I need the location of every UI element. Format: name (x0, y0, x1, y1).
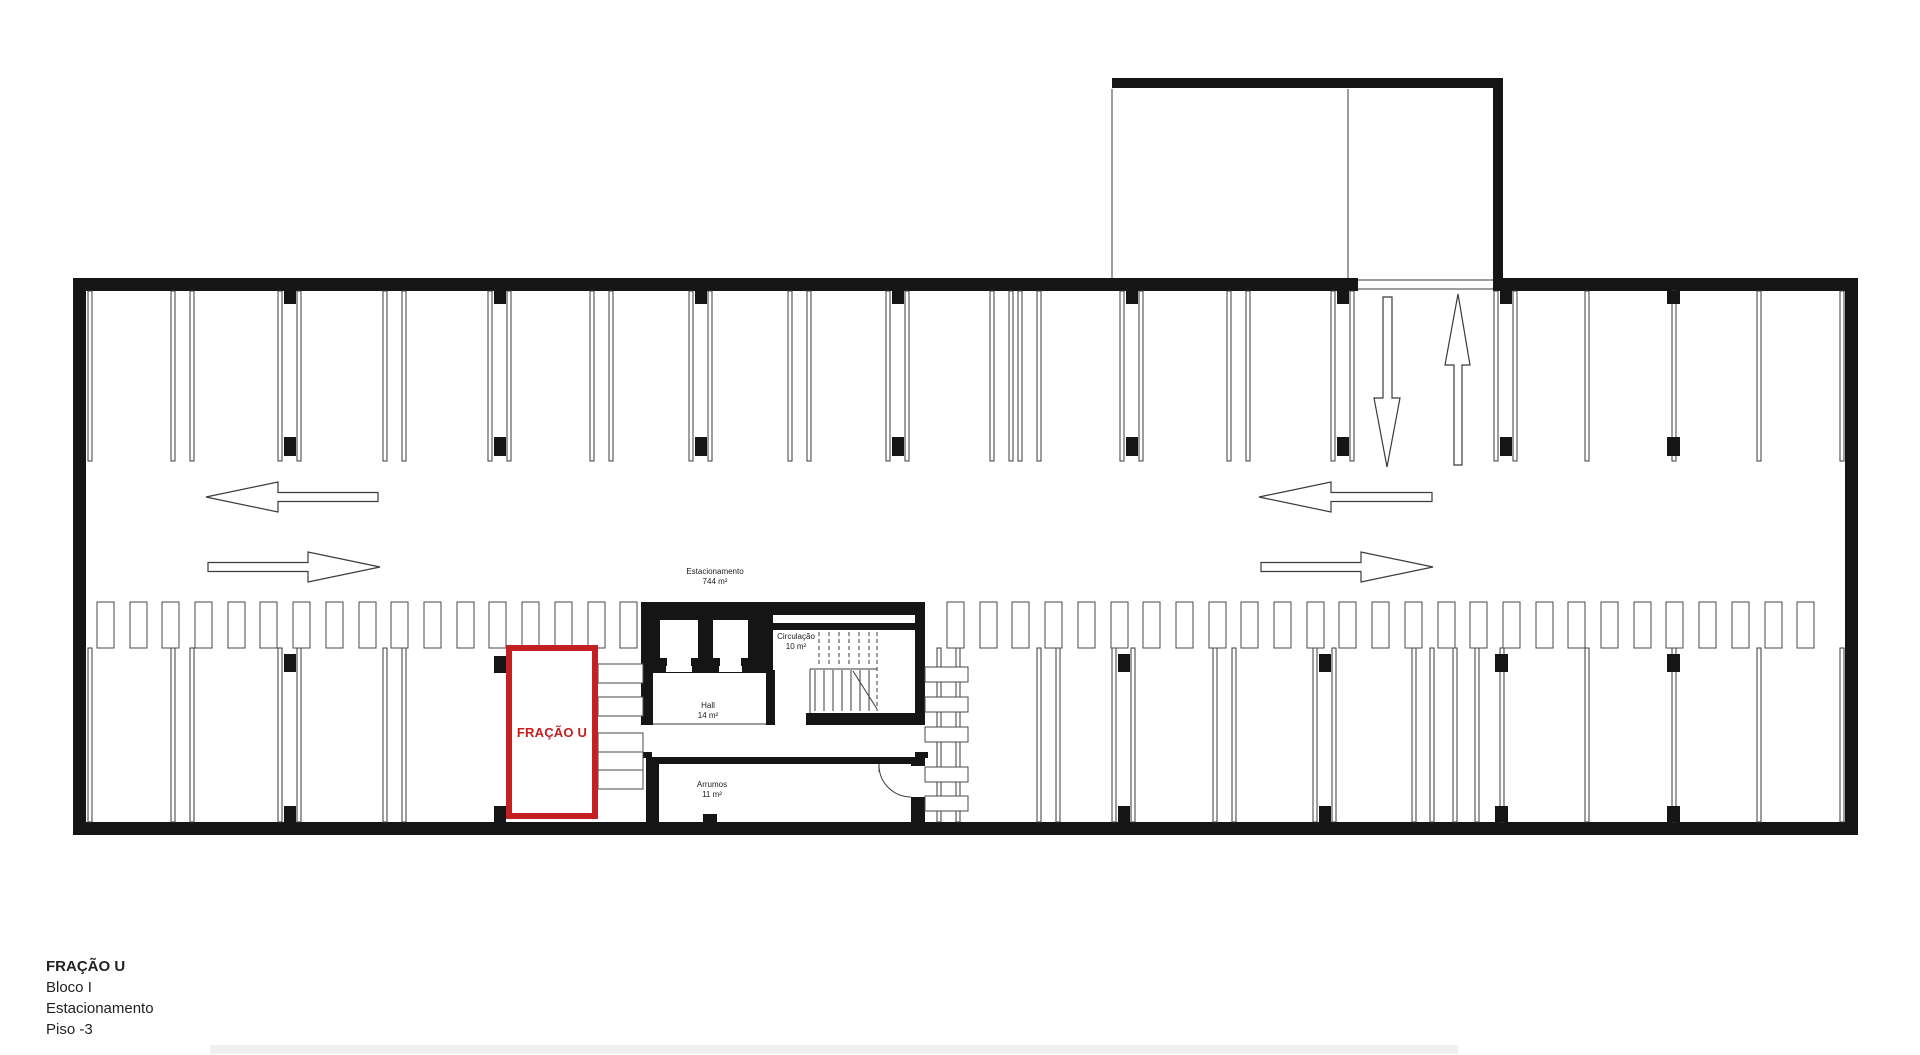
floor-plan-drawing (0, 0, 1920, 1055)
fracao-u-label: FRAÇÃO U (517, 725, 587, 740)
room-area: 11 m² (672, 790, 752, 800)
title-block: FRAÇÃO U Bloco I Estacionamento Piso -3 (46, 956, 154, 1040)
room-label-arrumos: Arrumos 11 m² (672, 780, 752, 800)
room-name: Estacionamento (686, 567, 743, 576)
room-name: Hall (701, 701, 715, 710)
floor-plan-page: Estacionamento 744 m² Circulação 10 m² H… (0, 0, 1920, 1055)
room-name: Circulação (777, 632, 815, 641)
title-block-fraction: FRAÇÃO U (46, 956, 154, 977)
room-area: 14 m² (668, 711, 748, 721)
horizontal-scrollbar-track[interactable] (210, 1045, 1458, 1054)
title-block-building: Bloco I (46, 977, 154, 998)
room-label-circulacao: Circulação 10 m² (756, 632, 836, 652)
title-block-use: Estacionamento (46, 998, 154, 1019)
room-name: Arrumos (697, 780, 727, 789)
room-label-estacionamento: Estacionamento 744 m² (645, 567, 785, 587)
room-area: 10 m² (756, 642, 836, 652)
room-label-hall: Hall 14 m² (668, 701, 748, 721)
fracao-u-highlight: FRAÇÃO U (506, 645, 598, 819)
title-block-floor: Piso -3 (46, 1019, 154, 1040)
room-area: 744 m² (645, 577, 785, 587)
